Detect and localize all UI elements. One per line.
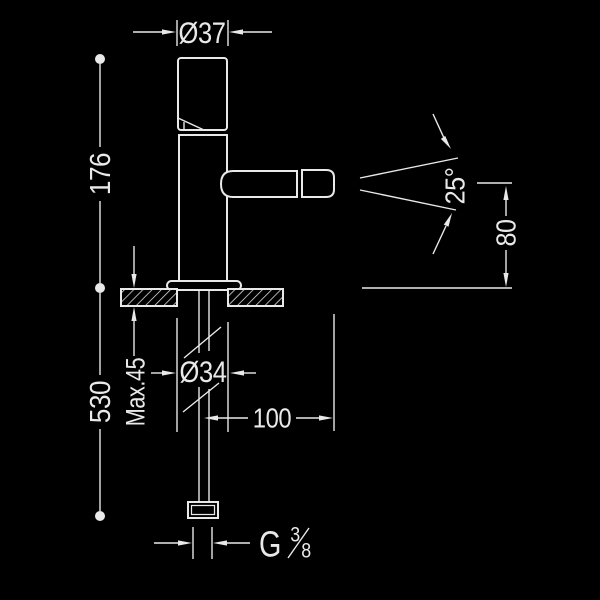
dim-label-swivel-angle: 25° <box>439 168 471 205</box>
dim-body-height: 176 <box>84 54 117 293</box>
dim-label-spout-reach: 100 <box>253 402 291 434</box>
spout-aerator <box>302 170 334 197</box>
dim-max-deck-thickness: Max.45 <box>121 246 151 426</box>
arrowhead-right <box>162 370 176 375</box>
dim-label-spout-height: 80 <box>490 219 522 246</box>
arrowhead-down <box>131 274 136 288</box>
dim-dot <box>95 54 105 64</box>
faucet-dimension-drawing: Ø37 176 530 <box>0 0 600 600</box>
arrowhead-right <box>162 29 176 34</box>
connection-nut <box>188 502 218 518</box>
arrowhead-left <box>230 370 244 375</box>
arrowhead-angle-upper <box>441 136 451 149</box>
dim-label-hole-diameter: Ø34 <box>180 355 227 388</box>
dim-hose-length: 530 <box>84 293 117 521</box>
arrowhead-left <box>213 540 227 545</box>
deck-section-left <box>121 289 177 306</box>
arrowhead-left <box>204 415 218 420</box>
faucet-handle <box>178 58 227 130</box>
arrowhead-right <box>178 540 192 545</box>
technical-drawing-canvas: Ø37 176 530 <box>0 0 600 600</box>
arrowhead-up <box>131 307 136 321</box>
faucet <box>167 58 334 290</box>
dim-top-diameter: Ø37 <box>133 16 272 49</box>
arrowhead-right <box>319 415 333 420</box>
arrowhead-up <box>503 186 508 200</box>
faucet-spout <box>221 171 297 197</box>
dim-label-body-height: 176 <box>84 153 117 195</box>
deck-section-right <box>228 289 283 306</box>
dim-label-hose-length: 530 <box>84 381 117 423</box>
dim-hole-diameter: Ø34 <box>151 318 256 432</box>
supply-hose <box>183 290 221 518</box>
dim-label-max-deck-thickness: Max.45 <box>121 358 151 426</box>
mounting-deck <box>121 289 283 306</box>
dim-dot <box>95 511 105 521</box>
hose-break-mark <box>184 327 221 358</box>
thread-label-denominator: 8 <box>301 539 311 563</box>
dim-swivel-angle: 25° <box>360 114 471 254</box>
dim-label-top-diameter: Ø37 <box>179 16 226 49</box>
faucet-body <box>179 135 227 282</box>
arrowhead-angle-lower <box>444 213 452 227</box>
arrowhead-down <box>503 273 508 287</box>
dim-dot <box>95 283 105 293</box>
thread-label-prefix: G <box>259 524 281 565</box>
arrowhead-left <box>229 29 243 34</box>
dim-thread-size: G 3 8 <box>154 523 311 564</box>
